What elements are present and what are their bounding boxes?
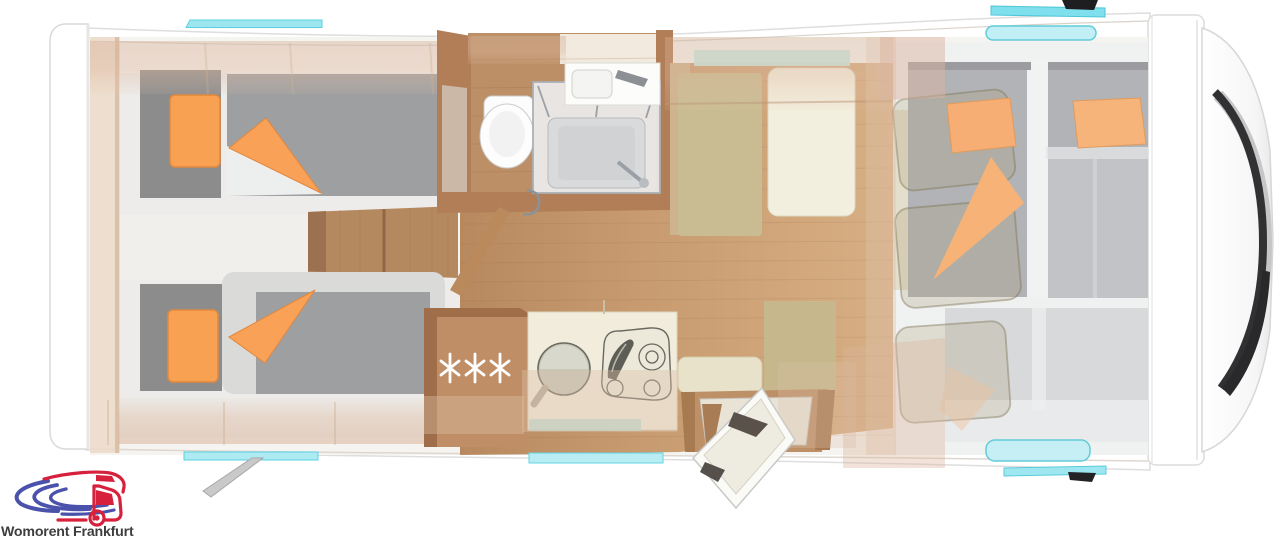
svg-text:Womorent Frankfurt: Womorent Frankfurt	[1, 524, 134, 537]
